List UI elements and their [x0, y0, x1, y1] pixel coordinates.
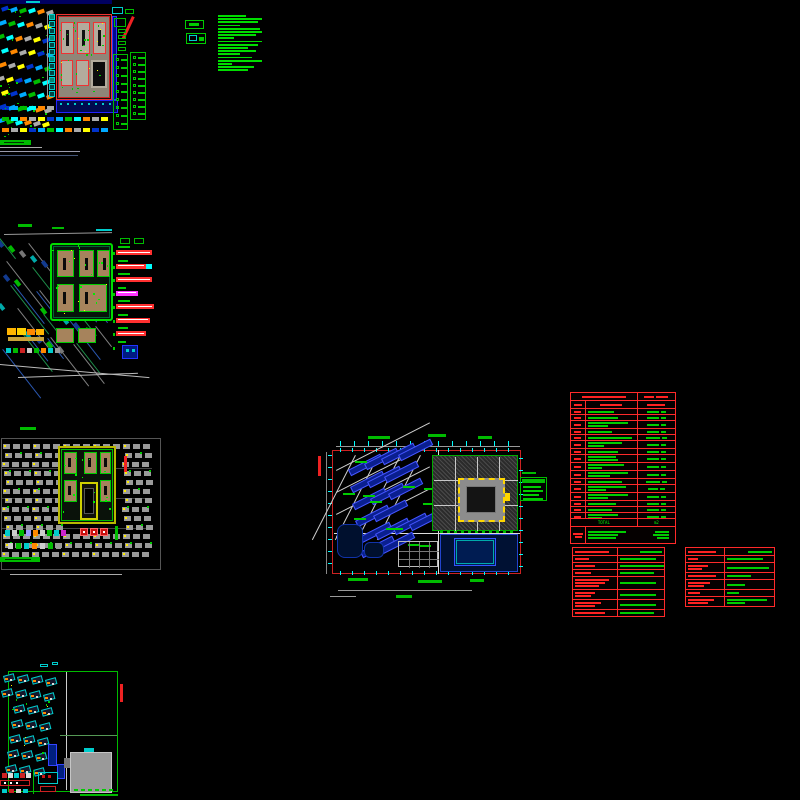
- table-cell: [617, 548, 664, 555]
- cad-shape: [93, 553, 95, 555]
- table-cell: [571, 435, 585, 440]
- table-cell: TOTAL: [571, 519, 637, 526]
- building-footprint: [42, 462, 49, 467]
- greeked-text: [588, 514, 618, 516]
- greeked-text: [620, 594, 656, 596]
- building-footprint: [132, 552, 139, 557]
- tree-symbol: [93, 501, 95, 503]
- tick-mark: [448, 448, 449, 452]
- greeked-text: [575, 565, 595, 567]
- tick-mark: [364, 448, 365, 452]
- building-footprint: [43, 444, 50, 449]
- zoning-tile: [48, 543, 53, 549]
- table-cell: [571, 471, 585, 478]
- tree-symbol: [496, 531, 499, 533]
- cad-shape: [42, 775, 45, 778]
- tree-symbol: [98, 299, 100, 301]
- cad-shape: [63, 258, 66, 270]
- building-footprint: [52, 552, 59, 557]
- tree-symbol: [440, 531, 443, 533]
- zoning-tile: [16, 543, 21, 549]
- tree-symbol: [68, 60, 70, 62]
- cad-shape: [3, 508, 5, 510]
- tree-symbol: [90, 542, 92, 544]
- building-footprint: [73, 534, 80, 539]
- building-footprint: [92, 128, 99, 132]
- greeked-text: [575, 602, 601, 604]
- building-footprint: [33, 37, 41, 43]
- dimension-label: [348, 578, 368, 581]
- callout-tick: [113, 320, 115, 323]
- cad-shape: [132, 349, 135, 352]
- building-footprint: [29, 117, 36, 121]
- table-cell: [571, 401, 585, 408]
- table-cell: [585, 401, 637, 408]
- table-row: [686, 596, 774, 606]
- cad-shape: [48, 775, 51, 778]
- table-cell: [637, 393, 675, 400]
- cad-shape: [8, 694, 10, 696]
- greeked-text: [688, 582, 710, 584]
- building-footprint: [133, 534, 140, 539]
- building-footprint: [15, 35, 23, 41]
- greeked-text: [588, 459, 618, 461]
- table-row: [686, 562, 774, 572]
- cad-shape: [98, 30, 101, 46]
- parcel-cell: [40, 307, 47, 315]
- tick-mark: [340, 448, 341, 452]
- parcel-line: [50, 337, 89, 386]
- cad-shape: [4, 142, 24, 143]
- pool: [364, 542, 384, 558]
- table-cell: [724, 548, 774, 555]
- table-row: [571, 462, 675, 470]
- table-cell: [571, 493, 585, 500]
- greeked-text: [688, 558, 698, 560]
- detail-box: [134, 238, 144, 244]
- greeked-text: [727, 558, 763, 560]
- table-cell: [585, 501, 637, 506]
- cad-shape: [189, 35, 197, 41]
- greeked-text: [575, 612, 605, 614]
- dimension-label: [81, 789, 85, 791]
- legend-swatch: [116, 122, 119, 125]
- legend-label: [138, 106, 145, 108]
- cad-shape: [118, 252, 150, 253]
- building-footprint: [143, 489, 150, 494]
- greeked-text: [588, 437, 632, 439]
- legend-label: [138, 99, 145, 101]
- table-cell: [617, 556, 664, 562]
- cad-shape: [88, 103, 90, 105]
- greeked-text: [620, 572, 654, 574]
- building-footprint: [74, 128, 81, 132]
- table-cell: [585, 507, 637, 512]
- building-footprint: [134, 516, 141, 521]
- tree-symbol: [21, 524, 23, 526]
- tree-symbol: [76, 73, 78, 75]
- cad-shape: [100, 29, 101, 30]
- legend-swatch: [116, 66, 119, 69]
- tree-symbol: [0, 85, 2, 87]
- tree-symbol: [93, 293, 95, 295]
- lawn-label: [363, 495, 375, 497]
- building-footprint: [25, 453, 32, 458]
- building-unit: [79, 284, 107, 312]
- cad-shape: [124, 535, 126, 537]
- tree-symbol: [17, 706, 19, 708]
- parcel-line: [73, 344, 105, 384]
- tree-symbol: [461, 531, 464, 533]
- legend-label: [138, 64, 145, 66]
- table-row: [571, 506, 675, 512]
- table-row: [573, 562, 664, 569]
- cad-shape: [4, 445, 6, 447]
- tree-symbol: [16, 699, 18, 701]
- tree-symbol: [9, 87, 11, 89]
- building-footprint: [17, 21, 25, 27]
- cad-shape: [30, 741, 32, 743]
- detail-box: [114, 18, 126, 27]
- cad-shape: [126, 544, 128, 546]
- building-footprint: [23, 489, 30, 494]
- cad-shape: [89, 68, 90, 69]
- table-cell: [585, 527, 675, 543]
- zoning-tile: [56, 543, 61, 549]
- table-cell: [724, 573, 774, 579]
- greeked-text: [575, 582, 605, 584]
- note-line: [218, 53, 240, 55]
- detail-box: [52, 662, 58, 665]
- greeked-text: [575, 572, 591, 574]
- table-cell: [573, 556, 617, 562]
- greeked-text: [588, 425, 608, 427]
- greeked-text: [688, 551, 716, 553]
- greeked-text: [688, 568, 702, 570]
- tree-symbol: [62, 87, 64, 89]
- zoning-tile: [34, 348, 39, 353]
- greeked-text: [588, 422, 628, 424]
- court-area: [398, 541, 438, 567]
- table-cell: [637, 455, 675, 462]
- dimension-label: [74, 789, 78, 791]
- tree-symbol: [7, 506, 9, 508]
- table-row: [571, 414, 675, 420]
- cad-shape: [95, 103, 97, 105]
- cad-shape: [66, 30, 69, 46]
- greeked-text: [688, 565, 708, 567]
- building-footprint: [35, 23, 43, 29]
- table-cell: [585, 429, 637, 434]
- legend-swatch: [116, 106, 119, 109]
- tree-symbol: [102, 45, 104, 47]
- tree-symbol: [129, 470, 131, 472]
- site-plan-mid-left: [0, 218, 175, 398]
- building-footprint: [6, 76, 14, 82]
- building-footprint: [56, 128, 63, 132]
- tree-symbol: [75, 458, 77, 460]
- parcel-cell: [49, 42, 55, 48]
- tree-symbol: [16, 82, 18, 84]
- tree-symbol: [447, 531, 450, 533]
- cad-shape: [33, 553, 35, 555]
- table-cell: [637, 507, 675, 512]
- table-cell: [585, 479, 637, 484]
- table-row: [571, 470, 675, 478]
- building-footprint: [83, 117, 90, 121]
- legend-label: [121, 115, 127, 117]
- legend-label: [138, 113, 145, 115]
- greeked-text: [640, 551, 662, 553]
- detail-box: [118, 29, 126, 33]
- legend-swatch: [133, 70, 136, 73]
- greeked-text: [574, 424, 581, 426]
- table-cell: [573, 590, 617, 599]
- zoning-tile: [32, 543, 37, 549]
- greeked-text: [574, 437, 581, 439]
- greeked-text: [574, 509, 581, 511]
- cad-shape: [47, 682, 50, 684]
- tree-symbol: [40, 452, 42, 454]
- legend-label: [523, 490, 543, 492]
- legend-label: [523, 486, 541, 488]
- greeked-text: [574, 411, 581, 413]
- table-cell: [637, 501, 675, 506]
- parcel-cell: [49, 28, 55, 34]
- table-row: [571, 478, 675, 484]
- cad-shape: [46, 728, 48, 730]
- tick-mark: [412, 571, 413, 575]
- title-text-blob: [26, 1, 40, 3]
- table-cell: [637, 441, 675, 448]
- legend-swatch: [133, 91, 136, 94]
- tree-symbol: [104, 471, 106, 473]
- tree-symbol: [87, 39, 89, 41]
- cad-shape: [456, 540, 494, 564]
- table-row: [573, 589, 664, 599]
- cad-shape: [118, 319, 148, 320]
- tree-symbol: [91, 54, 93, 56]
- cad-shape: [123, 553, 125, 555]
- legend-label: [121, 91, 127, 93]
- tree-symbol: [73, 27, 75, 29]
- cad-shape: [66, 544, 68, 546]
- cad-shape: [103, 531, 105, 533]
- callout-label: [118, 327, 128, 329]
- building-footprint: [20, 106, 27, 110]
- tree-symbol: [64, 465, 66, 467]
- greeked-text: [588, 442, 622, 444]
- note-line: [218, 57, 252, 59]
- note-line: [218, 50, 256, 52]
- callout-tick: [113, 279, 115, 282]
- building-footprint: [24, 36, 32, 42]
- greeked-text: [688, 585, 704, 587]
- tree-symbol: [83, 45, 85, 47]
- tree-symbol: [74, 22, 76, 24]
- cad-shape: [61, 62, 62, 63]
- building-footprint: [133, 444, 140, 449]
- table-row: [686, 555, 774, 562]
- cad-shape: [104, 486, 107, 495]
- legend-swatch: [116, 90, 119, 93]
- tick-mark: [328, 551, 332, 552]
- callout-label: [118, 287, 126, 289]
- greeked-text: [588, 411, 614, 413]
- note-line: [218, 41, 262, 43]
- table-row: [571, 434, 675, 440]
- dimension-label: [88, 789, 92, 791]
- greeked-text: [647, 404, 665, 406]
- building-footprint: [42, 552, 49, 557]
- legend-swatch: [116, 58, 119, 61]
- tick-mark: [424, 571, 425, 575]
- building-footprint: [135, 453, 142, 458]
- cad-shape: [28, 756, 30, 758]
- greeked-text: [727, 584, 745, 586]
- table-row: [686, 572, 774, 579]
- callout-label: [118, 341, 126, 343]
- callout-tick: [113, 306, 115, 309]
- note-line: [218, 18, 262, 20]
- tree-symbol: [130, 542, 132, 544]
- dimension-label: [95, 789, 99, 791]
- detail-box: [38, 772, 58, 784]
- building-footprint: [101, 128, 108, 132]
- tree-symbol: [60, 30, 62, 32]
- building-footprint: [37, 93, 45, 99]
- greeked-text: [727, 599, 767, 601]
- note-line: [218, 37, 234, 39]
- building-footprint: [15, 453, 22, 458]
- cad-shape: [115, 526, 118, 540]
- building-footprint: [14, 471, 21, 476]
- cad-shape: [429, 542, 430, 568]
- tick-mark: [519, 554, 523, 555]
- building-footprint: [35, 65, 43, 71]
- cad-shape: [14, 755, 16, 757]
- cad-shape: [199, 37, 204, 41]
- greeked-text: [588, 464, 624, 466]
- table-row: [571, 428, 675, 434]
- tree-symbol: [4, 95, 6, 97]
- cad-shape: [78, 301, 79, 302]
- tree-symbol: [468, 531, 471, 533]
- table-cell: [617, 600, 664, 609]
- building-footprint: [44, 471, 51, 476]
- cad-shape: [455, 457, 456, 531]
- greeked-text: [588, 481, 622, 483]
- cad-shape: [31, 695, 34, 697]
- cad-shape: [85, 292, 88, 304]
- building-footprint: [10, 48, 18, 54]
- parcel-cell: [49, 70, 55, 76]
- cad-shape: [33, 680, 36, 682]
- table-row: [571, 420, 675, 428]
- tree-symbol: [33, 110, 35, 112]
- tree-symbol: [150, 542, 152, 544]
- zoning-tile: [47, 530, 52, 536]
- zoning-tile: [2, 773, 7, 778]
- cad-shape: [50, 698, 52, 700]
- building-footprint: [42, 507, 49, 512]
- table-row: [573, 599, 664, 609]
- building-footprint: [65, 117, 72, 121]
- cad-shape: [109, 103, 111, 105]
- table-row: [573, 569, 664, 576]
- greeked-text: [574, 488, 581, 490]
- table-cell: [637, 449, 675, 454]
- cad-shape: [68, 458, 71, 467]
- cad-shape: [125, 472, 127, 474]
- cad-shape: [36, 454, 38, 456]
- plan-caption: [80, 794, 118, 796]
- cad-shape: [47, 706, 48, 707]
- building-footprint: [43, 489, 50, 494]
- building-footprint: [45, 453, 52, 458]
- tree-symbol: [78, 245, 80, 247]
- tree-symbol: [15, 11, 17, 13]
- dimension-label: [52, 227, 64, 229]
- cad-shape: [124, 490, 126, 492]
- cad-shape: [97, 70, 98, 71]
- table-row: [571, 484, 675, 492]
- tree-symbol: [58, 286, 60, 288]
- zoning-tile: [2, 789, 7, 793]
- plan-caption: [20, 427, 36, 430]
- zoning-tile: [55, 348, 60, 353]
- cad-shape: [67, 103, 69, 105]
- table-cell: [637, 463, 675, 470]
- tick-mark: [328, 563, 332, 564]
- tree-symbol: [61, 524, 63, 526]
- table-cell: [571, 455, 585, 462]
- tree-symbol: [489, 531, 492, 533]
- table-cell: [571, 449, 585, 454]
- building-footprint: [28, 50, 36, 56]
- building-footprint: [11, 106, 18, 110]
- zoning-tile: [48, 348, 53, 353]
- callout-tick: [113, 293, 115, 296]
- table-row: [686, 548, 774, 555]
- callout-tick: [113, 333, 115, 336]
- greeked-text: [574, 417, 581, 419]
- table-cell: [571, 421, 585, 428]
- tick-mark: [519, 530, 523, 531]
- table-cell: [686, 580, 724, 589]
- table-cell: [571, 409, 585, 414]
- cad-shape: [17, 694, 20, 696]
- cad-shape: [33, 508, 35, 510]
- cad-shape: [5, 559, 31, 560]
- tree-symbol: [8, 93, 10, 95]
- greeked-text: [588, 486, 626, 488]
- tree-symbol: [42, 752, 44, 754]
- greeked-text: [574, 404, 582, 406]
- parcel-cell: [3, 274, 10, 282]
- greeked-text: [588, 494, 628, 496]
- building-footprint: [12, 507, 19, 512]
- cad-shape: [9, 754, 12, 756]
- parcel-cell: [49, 91, 55, 97]
- cad-shape: [5, 472, 7, 474]
- table-cell: [573, 548, 617, 555]
- greeked-text: [727, 592, 739, 594]
- tree-symbol: [12, 39, 14, 41]
- callout-bar-tail: [146, 264, 152, 269]
- greeked-text: [620, 558, 656, 560]
- tree-symbol: [75, 474, 77, 476]
